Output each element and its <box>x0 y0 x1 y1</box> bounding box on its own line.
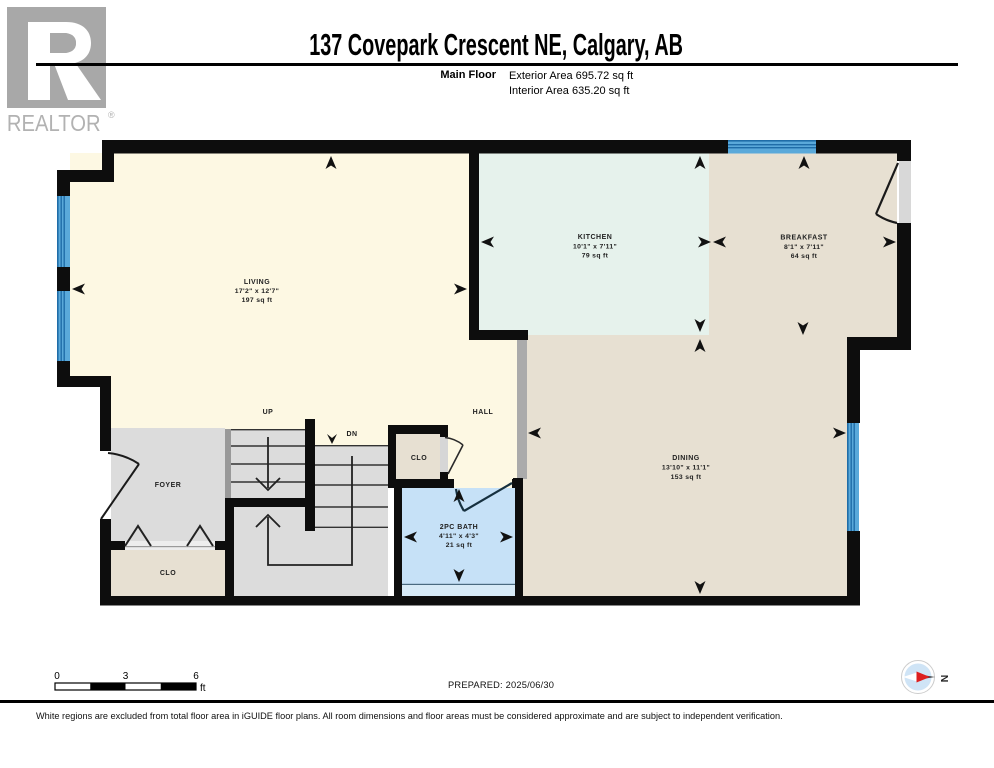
svg-text:17'2" x 12'7": 17'2" x 12'7" <box>235 288 279 295</box>
svg-text:DN: DN <box>346 431 357 438</box>
svg-text:13'10" x 11'1": 13'10" x 11'1" <box>662 465 710 472</box>
svg-text:153 sq ft: 153 sq ft <box>671 474 702 481</box>
svg-text:0: 0 <box>54 671 60 682</box>
svg-text:79 sq ft: 79 sq ft <box>582 253 609 260</box>
svg-text:64 sq ft: 64 sq ft <box>791 253 818 260</box>
svg-text:N: N <box>938 675 950 683</box>
svg-text:197 sq ft: 197 sq ft <box>242 297 273 304</box>
svg-text:KITCHEN: KITCHEN <box>578 234 613 241</box>
svg-text:DINING: DINING <box>672 455 700 462</box>
svg-text:3: 3 <box>123 671 129 682</box>
svg-text:ft: ft <box>200 683 206 694</box>
svg-text:10'1" x 7'11": 10'1" x 7'11" <box>573 244 617 251</box>
svg-text:UP: UP <box>263 409 274 416</box>
svg-text:2PC BATH: 2PC BATH <box>440 524 478 531</box>
svg-text:CLO: CLO <box>411 455 427 462</box>
svg-text:HALL: HALL <box>473 409 494 416</box>
svg-text:8'1" x 7'11": 8'1" x 7'11" <box>784 244 824 251</box>
svg-text:21 sq ft: 21 sq ft <box>446 542 473 549</box>
svg-text:FOYER: FOYER <box>155 482 182 489</box>
svg-text:BREAKFAST: BREAKFAST <box>780 235 828 242</box>
svg-text:CLO: CLO <box>160 570 176 577</box>
svg-text:LIVING: LIVING <box>244 279 270 286</box>
svg-text:4'11" x 4'3": 4'11" x 4'3" <box>439 533 479 540</box>
svg-text:6: 6 <box>193 671 199 682</box>
